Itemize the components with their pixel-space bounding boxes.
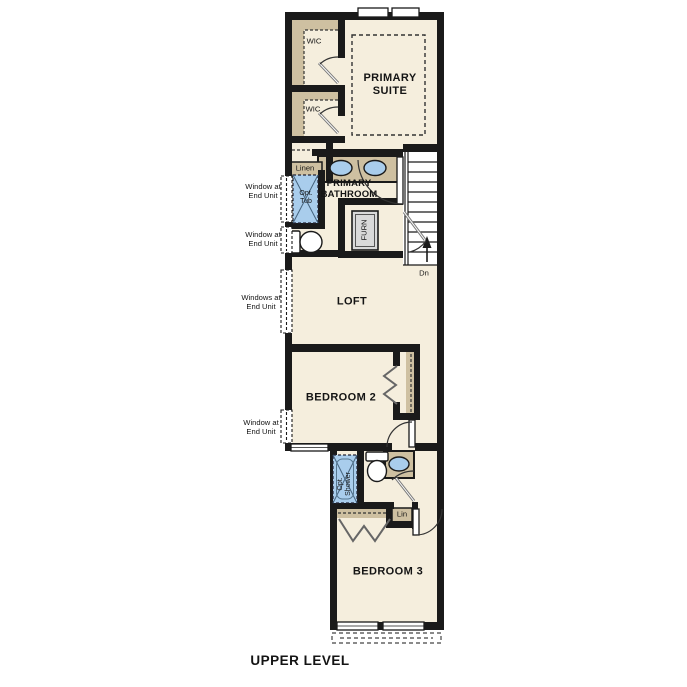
label-stairs-down: Dn [419, 270, 429, 279]
lower-roof-dashed-outline [332, 633, 441, 643]
label-opt-shower: Opt. Shower [337, 472, 354, 496]
label-loft: LOFT [337, 296, 367, 309]
floor-plan-drawing [0, 0, 687, 687]
label-window-at-end-unit-3: Window at End Unit [243, 419, 278, 437]
label-windows-at-end-unit: Windows at End Unit [241, 294, 280, 312]
label-opt-tub: Opt. Tub [299, 190, 312, 207]
staircase [403, 152, 437, 265]
label-lin: Lin [397, 511, 407, 520]
page-title: UPPER LEVEL [250, 653, 349, 669]
label-bedroom-3: BEDROOM 3 [353, 566, 423, 579]
bath2-sink [389, 457, 409, 471]
primary-toilet [291, 231, 322, 253]
label-primary-bathroom: PRIMARY BATHROOM [321, 178, 378, 200]
label-wic-1: WIC [307, 38, 322, 47]
label-window-at-end-unit-1: Window at End Unit [245, 183, 280, 201]
floor-plan-page: WIC WIC PRIMARY SUITE Linen PRIMARY BATH… [0, 0, 687, 687]
label-primary-suite: PRIMARY SUITE [363, 72, 416, 98]
label-wic-2: WIC [306, 106, 321, 115]
bath2-toilet [366, 452, 388, 482]
label-linen: Linen [296, 165, 315, 174]
label-window-at-end-unit-2: Window at End Unit [245, 231, 280, 249]
label-bedroom-2: BEDROOM 2 [306, 392, 376, 405]
label-furnace: FURN [361, 219, 370, 240]
